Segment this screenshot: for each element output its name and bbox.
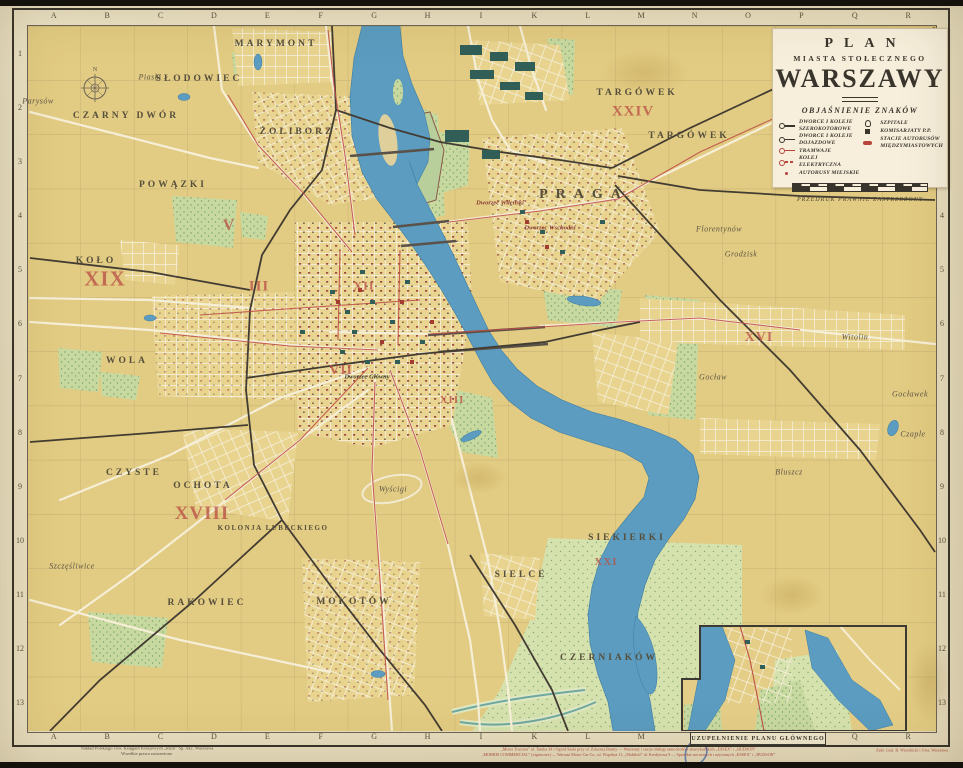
inset-caption: UZUPEŁNIENIE PLANU GŁÓWNEGO (690, 732, 826, 745)
grid-number: 1 (14, 26, 26, 80)
grid-letter: B (80, 732, 133, 744)
map-title-line1: PLAN (773, 36, 947, 52)
river-islet (393, 79, 403, 105)
grid-letter: C (134, 11, 187, 24)
title-rule (842, 97, 878, 102)
imprint-line: „Motor Traction” ul. Tamka 34 i Ogród Sa… (480, 747, 777, 752)
imprint-line: „MORRIS COMMERCIAL” (ciężarowe) — Warran… (480, 752, 777, 757)
legend-symbol-icon (860, 139, 877, 147)
legend-label: STACJE AUTOBUSÓW MIĘDZYMIASTOWYCH (880, 136, 943, 150)
grid-letter: C (134, 732, 187, 744)
grid-letter: D (187, 11, 240, 24)
grid-letter: G (347, 732, 400, 744)
grid-letter: I (454, 732, 507, 744)
grid-letter: A (27, 11, 80, 24)
legend-label: SZPITALE (880, 120, 908, 127)
grid-letter: F (294, 11, 347, 24)
legend-row: KOMISARJATY P.P. (860, 128, 943, 137)
grid-number: 7 (936, 351, 948, 405)
grid-number: 2 (14, 80, 26, 134)
grid-number: 9 (936, 459, 948, 513)
legend-row: TRAMWAJE (779, 147, 860, 156)
grid-number: 12 (936, 622, 948, 676)
title-cartouche: PLAN MIASTA STOŁECZNEGO WARSZAWY OBJAŚNI… (772, 28, 948, 188)
legend-symbol-icon (779, 170, 796, 178)
grid-letter: L (561, 732, 614, 744)
grid-letter: D (187, 732, 240, 744)
legend-symbol-icon (779, 147, 796, 155)
scan-edge-bottom (0, 762, 963, 768)
legend-label: DWORCE I KOLEJE SZEROKOTOROWE (799, 119, 860, 133)
grid-letter: F (294, 732, 347, 744)
printer-imprint: Zakł. Graf. B. Wierzbicki i S-ka, Warsza… (858, 748, 948, 753)
scan-edge-top (0, 0, 963, 6)
grid-letter: N (668, 11, 721, 24)
legend-row: STACJE AUTOBUSÓW MIĘDZYMIASTOWYCH (860, 136, 943, 150)
grid-letter: G (347, 11, 400, 24)
grid-letter: A (27, 732, 80, 744)
grid-numbers-left: 12345678910111213 (14, 26, 26, 730)
legend-row: AUTOBUSY MIEJSKIE (779, 169, 860, 178)
map-title-line2: MIASTA STOŁECZNEGO (773, 54, 947, 63)
grid-letter: I (454, 11, 507, 24)
grid-letter: R (882, 732, 935, 744)
grid-letter: M (614, 11, 667, 24)
scale-bar-main (792, 186, 928, 192)
grid-number: 11 (14, 568, 26, 622)
grid-number: 8 (14, 405, 26, 459)
grid-letter: H (401, 11, 454, 24)
grid-number: 7 (14, 351, 26, 405)
grid-number: 6 (14, 297, 26, 351)
legend-symbol-icon (860, 128, 877, 136)
grid-letter: Q (828, 732, 881, 744)
grid-letter: K (508, 11, 561, 24)
grid-number: 3 (14, 134, 26, 188)
grid-letter: E (241, 11, 294, 24)
grid-number: 13 (14, 676, 26, 730)
legend-symbol-icon (779, 136, 796, 144)
grid-number: 11 (936, 568, 948, 622)
map-title-line3: WARSZAWY (773, 64, 947, 94)
grid-number: 8 (936, 405, 948, 459)
legend-left-column: DWORCE I KOLEJE SZEROKOTOROWE DWORCE I K… (779, 119, 860, 178)
legend-label: DWORCE I KOLEJE DOJAZDOWE (799, 133, 860, 147)
grid-letter: M (614, 732, 667, 744)
inset-map (682, 626, 906, 731)
legend-label: KOLEJ ELEKTRYCZNA (799, 155, 860, 169)
grid-number: 4 (14, 188, 26, 242)
grid-letter: R (882, 11, 935, 24)
grid-letter: E (241, 732, 294, 744)
grid-number: 5 (936, 243, 948, 297)
imprint-line: Wszelkie prawa zastrzeżone. (30, 752, 264, 757)
legend-symbol-icon (860, 119, 877, 127)
publisher-imprint: Nakład Polskiego Tow. Księgarń Kolejowyc… (30, 747, 264, 758)
grid-number: 10 (14, 513, 26, 567)
grid-letters-top: ABCDEFGHIKLMNOPQR (27, 11, 935, 24)
grid-letter: H (401, 732, 454, 744)
grid-number: 6 (936, 297, 948, 351)
legend: DWORCE I KOLEJE SZEROKOTOROWE DWORCE I K… (779, 119, 943, 178)
grid-letter: O (721, 11, 774, 24)
grid-number: 10 (936, 513, 948, 567)
compass-north-letter: N (93, 67, 97, 73)
advert-imprint: „Motor Traction” ul. Tamka 34 i Ogród Sa… (480, 747, 777, 757)
legend-label: AUTOBUSY MIEJSKIE (799, 170, 859, 177)
legend-symbol-icon (779, 158, 796, 166)
legend-row: DWORCE I KOLEJE DOJAZDOWE (779, 133, 860, 147)
grid-letter: K (508, 732, 561, 744)
copyright-note: PRZEDRUK PRAWNIE ZASTRZEŻONY (773, 197, 947, 203)
legend-right-column: SZPITALE KOMISARJATY P.P. STACJE AUTOBUS… (860, 119, 943, 178)
legend-symbol-icon (779, 122, 796, 130)
grid-number: 12 (14, 622, 26, 676)
legend-label: TRAMWAJE (799, 148, 831, 155)
grid-letter: Q (828, 11, 881, 24)
legend-row: SZPITALE (860, 119, 943, 128)
grid-number: 13 (936, 676, 948, 730)
grid-letter: P (775, 11, 828, 24)
legend-title: OBJAŚNIENIE ZNAKÓW (773, 106, 947, 115)
legend-row: DWORCE I KOLEJE SZEROKOTOROWE (779, 119, 860, 133)
grid-letter: L (561, 11, 614, 24)
map-sheet: MARYMONTPiaskiParysówSŁODOWIECCZARNY DWÓ… (0, 0, 963, 768)
scale-bar (792, 183, 928, 192)
grid-number: 9 (14, 459, 26, 513)
legend-label: KOMISARJATY P.P. (880, 128, 931, 135)
grid-letter: B (80, 11, 133, 24)
grid-number: 5 (14, 243, 26, 297)
legend-row: KOLEJ ELEKTRYCZNA (779, 155, 860, 169)
